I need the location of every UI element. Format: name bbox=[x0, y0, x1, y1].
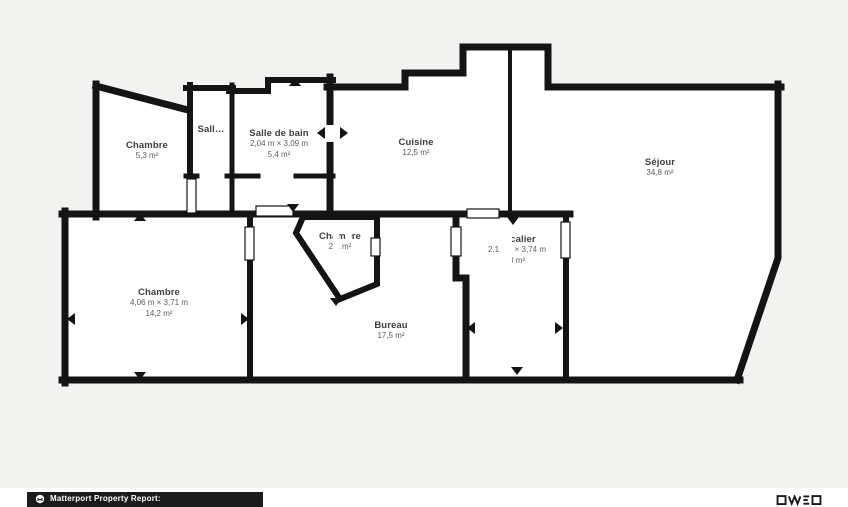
room-label-sejour: Séjour 34,8 m² bbox=[645, 157, 675, 179]
room-area: 8 m² bbox=[488, 256, 546, 267]
window-icon bbox=[467, 209, 499, 218]
room-area: 2,1 m² bbox=[319, 242, 361, 253]
room-label-salle-truncated: Sall… bbox=[198, 124, 225, 135]
footer-brand-text: Matterport Property Report: bbox=[50, 494, 161, 503]
room-area: 34,8 m² bbox=[645, 168, 675, 179]
room-name: Séjour bbox=[645, 157, 675, 168]
room-name: Escalier bbox=[488, 234, 546, 245]
room-label-chambre-bottom: Chambre 4,06 m × 3,71 m 14,2 m² bbox=[130, 287, 188, 319]
room-name: Chambre bbox=[130, 287, 188, 298]
label-occlusion-strip bbox=[346, 229, 351, 241]
floorplan-page: Chambre 5,3 m² Sall… Salle de bain 2,04 … bbox=[0, 0, 848, 507]
room-name: Cuisine bbox=[398, 137, 433, 148]
room-label-cuisine: Cuisine 12,5 m² bbox=[398, 137, 433, 159]
door-leaf-icon bbox=[187, 179, 196, 213]
door-gaps bbox=[325, 125, 335, 142]
room-area: 17,5 m² bbox=[374, 331, 407, 342]
label-occlusion-strip bbox=[499, 229, 512, 271]
door-leaf-icon bbox=[256, 206, 293, 216]
room-label-bureau: Bureau 17,5 m² bbox=[374, 320, 407, 342]
room-name: Bureau bbox=[374, 320, 407, 331]
room-area: 14,2 m² bbox=[130, 309, 188, 320]
door-frame-icon bbox=[371, 238, 380, 256]
room-name: Chambre bbox=[126, 140, 168, 151]
matterport-logo-icon bbox=[35, 494, 45, 504]
room-name: Salle de bain bbox=[249, 128, 308, 139]
room-dimensions: 2,04 m × 3,09 m bbox=[249, 139, 308, 150]
room-dimensions: 4,06 m × 3,71 m bbox=[130, 298, 188, 309]
room-area: 12,5 m² bbox=[398, 148, 433, 159]
room-label-chambre-small: Chambre 2,1 m² bbox=[319, 231, 361, 253]
room-name: Chambre bbox=[319, 231, 361, 242]
room-area: 5,4 m² bbox=[249, 150, 308, 161]
room-label-chambre-top: Chambre 5,3 m² bbox=[126, 140, 168, 162]
footer-report-bar: Matterport Property Report: bbox=[27, 492, 263, 507]
door-frame-icon bbox=[245, 227, 254, 260]
room-area: 5,3 m² bbox=[126, 151, 168, 162]
room-label-salle-de-bain: Salle de bain 2,04 m × 3,09 m 5,4 m² bbox=[249, 128, 308, 160]
label-occlusion-strip bbox=[333, 229, 339, 255]
room-label-escalier: Escalier 2,14 m × 3,74 m 8 m² bbox=[488, 234, 546, 266]
floorplan-svg bbox=[0, 0, 848, 507]
room-name: Sall… bbox=[198, 124, 225, 135]
room-dimensions: 2,14 m × 3,74 m bbox=[488, 245, 546, 256]
door-frame-icon bbox=[451, 227, 461, 256]
window-icon bbox=[561, 222, 570, 258]
stamp-logo-icon bbox=[768, 495, 830, 507]
